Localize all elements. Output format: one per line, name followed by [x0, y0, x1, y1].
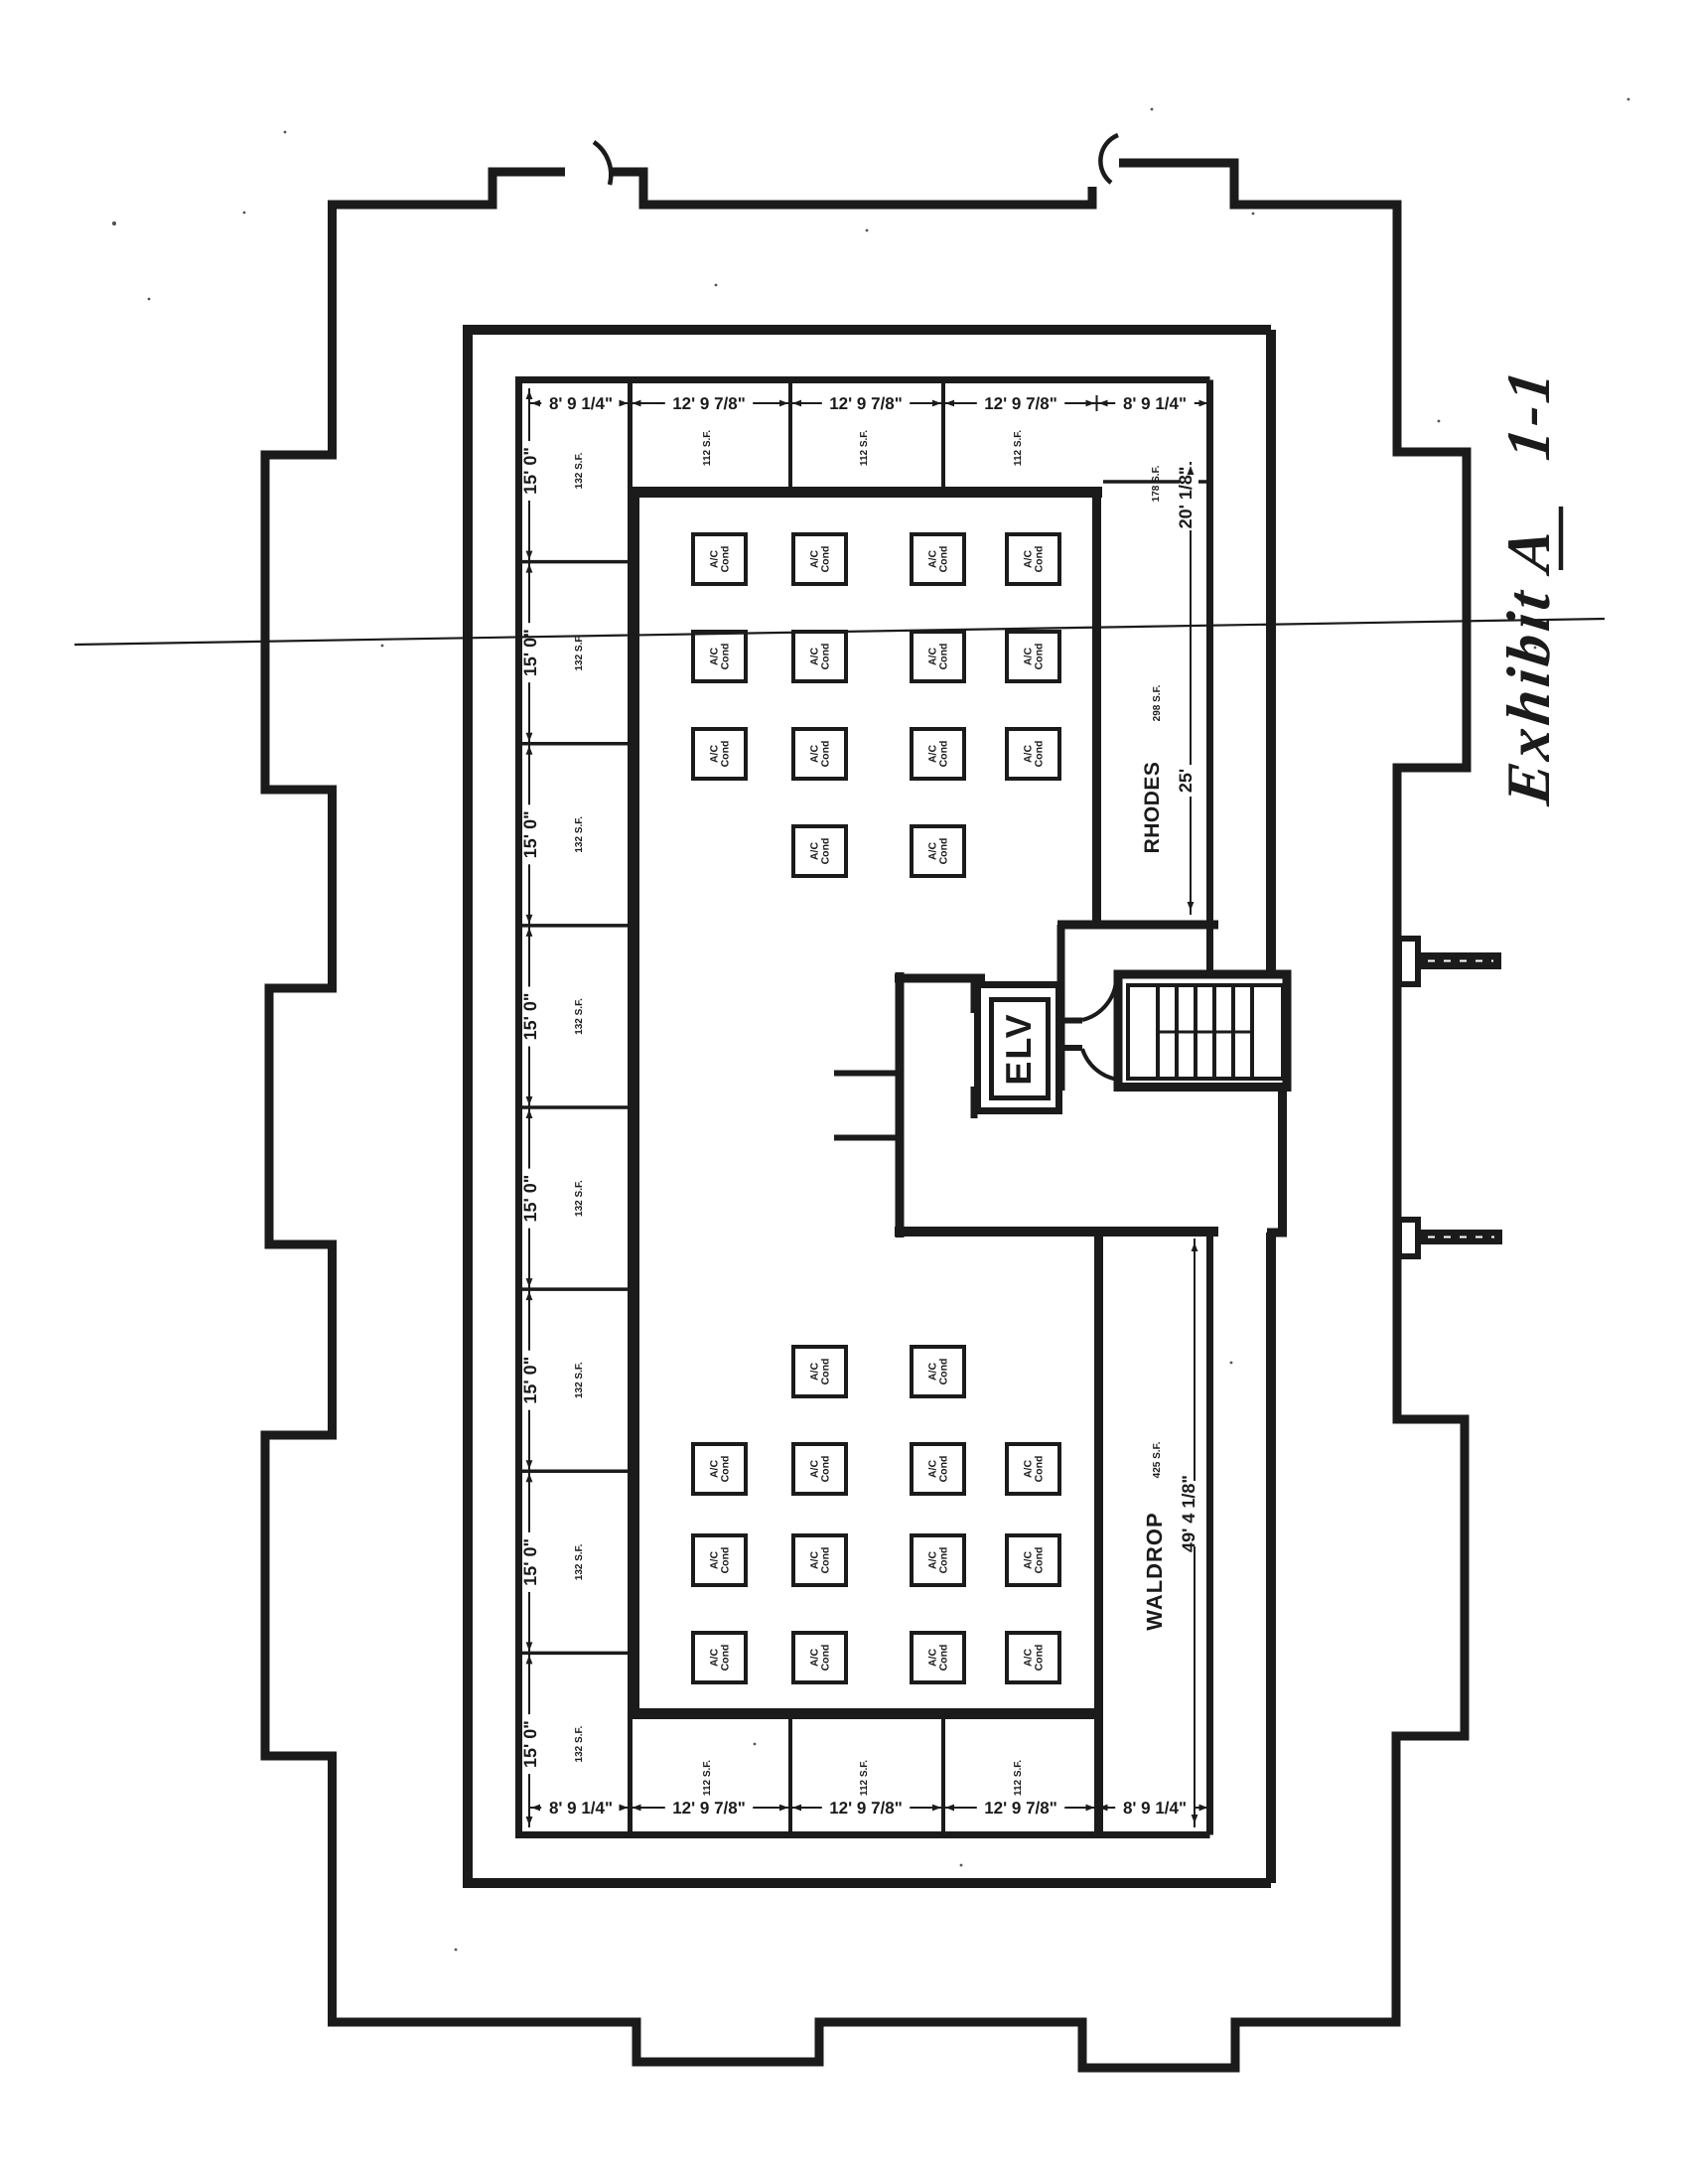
svg-text:112 S.F.: 112 S.F. [702, 430, 713, 466]
svg-text:49' 4 1/8": 49' 4 1/8" [1179, 1475, 1198, 1552]
svg-text:Cond: Cond [1034, 741, 1046, 768]
svg-text:Cond: Cond [1034, 1456, 1046, 1483]
svg-text:12' 9 7/8": 12' 9 7/8" [984, 1799, 1057, 1818]
svg-text:298 S.F.: 298 S.F. [1152, 684, 1163, 721]
svg-text:Cond: Cond [938, 838, 950, 865]
svg-text:132 S.F.: 132 S.F. [574, 816, 585, 853]
svg-text:132 S.F.: 132 S.F. [574, 998, 585, 1035]
svg-text:Cond: Cond [720, 1547, 732, 1574]
svg-text:Cond: Cond [938, 546, 950, 573]
svg-text:Cond: Cond [938, 1359, 950, 1385]
svg-text:Cond: Cond [820, 1645, 832, 1672]
svg-text:RHODES: RHODES [1141, 762, 1164, 854]
svg-text:Cond: Cond [820, 1456, 832, 1483]
svg-text:Cond: Cond [820, 741, 832, 768]
svg-text:Cond: Cond [720, 741, 732, 768]
svg-text:WALDROP: WALDROP [1142, 1512, 1167, 1630]
svg-text:132 S.F.: 132 S.F. [574, 1726, 585, 1763]
svg-text:Cond: Cond [1034, 1547, 1046, 1574]
svg-text:132 S.F.: 132 S.F. [574, 452, 585, 489]
svg-text:Cond: Cond [820, 546, 832, 573]
svg-text:8' 9 1/4": 8' 9 1/4" [1123, 394, 1187, 413]
svg-text:Cond: Cond [938, 1645, 950, 1672]
svg-text:12' 9 7/8": 12' 9 7/8" [984, 394, 1057, 413]
svg-text:15' 0": 15' 0" [520, 810, 540, 858]
svg-text:Cond: Cond [820, 644, 832, 670]
svg-text:8' 9 1/4": 8' 9 1/4" [549, 394, 613, 413]
svg-text:Cond: Cond [820, 1547, 832, 1574]
svg-text:15' 0": 15' 0" [520, 1175, 540, 1223]
svg-text:12' 9 7/8": 12' 9 7/8" [672, 394, 746, 413]
svg-text:12' 9 7/8": 12' 9 7/8" [829, 394, 903, 413]
svg-text:112 S.F.: 112 S.F. [859, 1760, 870, 1796]
svg-text:8' 9 1/4": 8' 9 1/4" [1123, 1799, 1187, 1818]
svg-text:178 S.F.: 178 S.F. [1151, 465, 1162, 502]
svg-text:Exhibit A: Exhibit A [1495, 521, 1563, 808]
svg-text:12' 9 7/8": 12' 9 7/8" [829, 1799, 903, 1818]
svg-text:112 S.F.: 112 S.F. [859, 430, 870, 466]
svg-text:Cond: Cond [938, 741, 950, 768]
svg-text:Cond: Cond [720, 1645, 732, 1672]
svg-text:Cond: Cond [1034, 546, 1046, 573]
svg-text:ELV: ELV [998, 1012, 1039, 1085]
svg-text:Cond: Cond [720, 644, 732, 670]
svg-text:15' 0": 15' 0" [520, 447, 540, 495]
svg-text:12' 9 7/8": 12' 9 7/8" [672, 1799, 746, 1818]
svg-text:25': 25' [1176, 769, 1196, 793]
svg-text:15' 0": 15' 0" [520, 993, 540, 1041]
svg-text:Cond: Cond [938, 1456, 950, 1483]
svg-text:8' 9 1/4": 8' 9 1/4" [549, 1799, 613, 1818]
svg-text:15' 0": 15' 0" [520, 1538, 540, 1586]
svg-text:425 S.F.: 425 S.F. [1152, 1441, 1163, 1478]
svg-text:112 S.F.: 112 S.F. [1013, 1760, 1024, 1796]
svg-text:20' 1/8": 20' 1/8" [1176, 467, 1196, 529]
svg-text:Cond: Cond [938, 644, 950, 670]
svg-text:1-1: 1-1 [1495, 364, 1563, 464]
svg-text:Cond: Cond [820, 1359, 832, 1385]
svg-text:Cond: Cond [938, 1547, 950, 1574]
svg-text:Cond: Cond [1034, 644, 1046, 670]
svg-text:132 S.F.: 132 S.F. [574, 1180, 585, 1217]
svg-text:132 S.F.: 132 S.F. [574, 1362, 585, 1398]
svg-text:112 S.F.: 112 S.F. [702, 1760, 713, 1796]
svg-text:112 S.F.: 112 S.F. [1013, 430, 1024, 466]
svg-text:132 S.F.: 132 S.F. [574, 1543, 585, 1580]
svg-text:Cond: Cond [820, 838, 832, 865]
svg-text:15' 0": 15' 0" [520, 1720, 540, 1768]
svg-text:Cond: Cond [720, 546, 732, 573]
svg-text:15' 0": 15' 0" [520, 1357, 540, 1404]
svg-text:Cond: Cond [720, 1456, 732, 1483]
svg-text:132 S.F.: 132 S.F. [574, 635, 585, 671]
svg-text:Cond: Cond [1034, 1645, 1046, 1672]
